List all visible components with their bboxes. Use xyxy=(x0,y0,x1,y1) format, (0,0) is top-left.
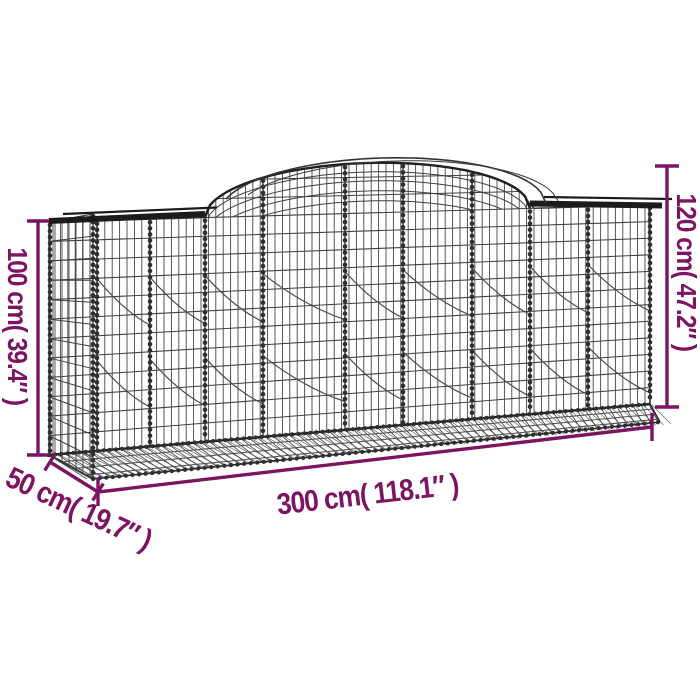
dim-label-height-left: 100 cm( 39.4″ ) xyxy=(1,247,33,405)
product-dimension-diagram: 100 cm( 39.4″ ) 120 cm( 47.2″ ) 300 cm( … xyxy=(0,0,700,700)
dim-label-height-right: 120 cm( 47.2″ ) xyxy=(670,193,700,351)
gabion-basket-illustration xyxy=(0,0,700,700)
